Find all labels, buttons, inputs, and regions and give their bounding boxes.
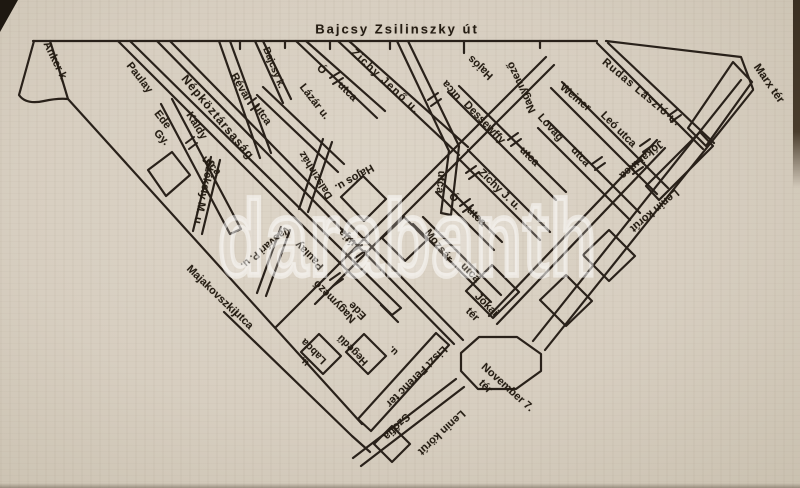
scanned-map-page: Bajcsy Zsilinszky útAnker k.PaulayEdeKál… xyxy=(0,0,800,488)
scan-edge-artifact xyxy=(793,0,800,188)
street-label-utca: utca xyxy=(434,170,447,193)
scan-shadow-artifact xyxy=(0,483,800,488)
street-label-bajcsy-zsilinszky-ut: Bajcsy Zsilinszky út xyxy=(315,23,479,36)
